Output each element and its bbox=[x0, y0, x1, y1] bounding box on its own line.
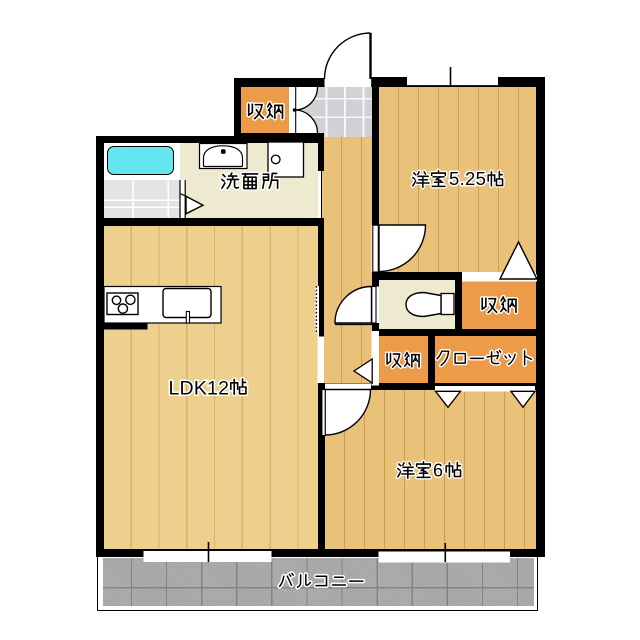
svg-text:5.25: 5.25 bbox=[449, 168, 486, 189]
svg-text:6: 6 bbox=[433, 461, 443, 481]
svg-text:LDK12: LDK12 bbox=[169, 378, 230, 400]
